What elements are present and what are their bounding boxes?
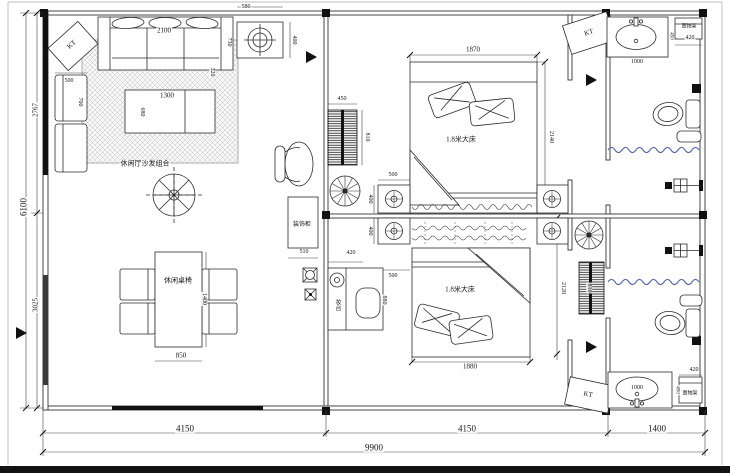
plan-drawing — [0, 0, 730, 473]
radiator-corridor — [579, 262, 604, 314]
sofa — [98, 16, 233, 70]
desk-chair — [275, 142, 313, 186]
bed1 — [410, 62, 537, 213]
bed2 — [412, 222, 530, 357]
shower-curtain-top — [608, 148, 699, 153]
radiator-bedroom1 — [328, 110, 357, 165]
shower-head-bottom — [665, 244, 703, 257]
dining-set — [120, 252, 237, 347]
coffee-table — [125, 90, 215, 133]
deco-cabinet — [288, 197, 318, 248]
dresser — [328, 268, 383, 330]
floor-plan-screenshot: 58040021007303205007001300680休闲厅沙发组合KT休闲… — [0, 0, 730, 473]
shower-head-top — [665, 179, 703, 192]
bathroom-bottom — [608, 244, 703, 408]
ceiling-light — [237, 22, 283, 58]
nightstands-bed2 — [378, 218, 568, 244]
socket-symbols — [303, 268, 317, 300]
shower-curtain-bottom — [608, 280, 699, 285]
fan-bedroom1 — [330, 176, 360, 206]
bathroom-top — [607, 17, 703, 192]
ceiling-fan-symbol — [146, 167, 202, 223]
fan-corridor — [575, 221, 603, 249]
